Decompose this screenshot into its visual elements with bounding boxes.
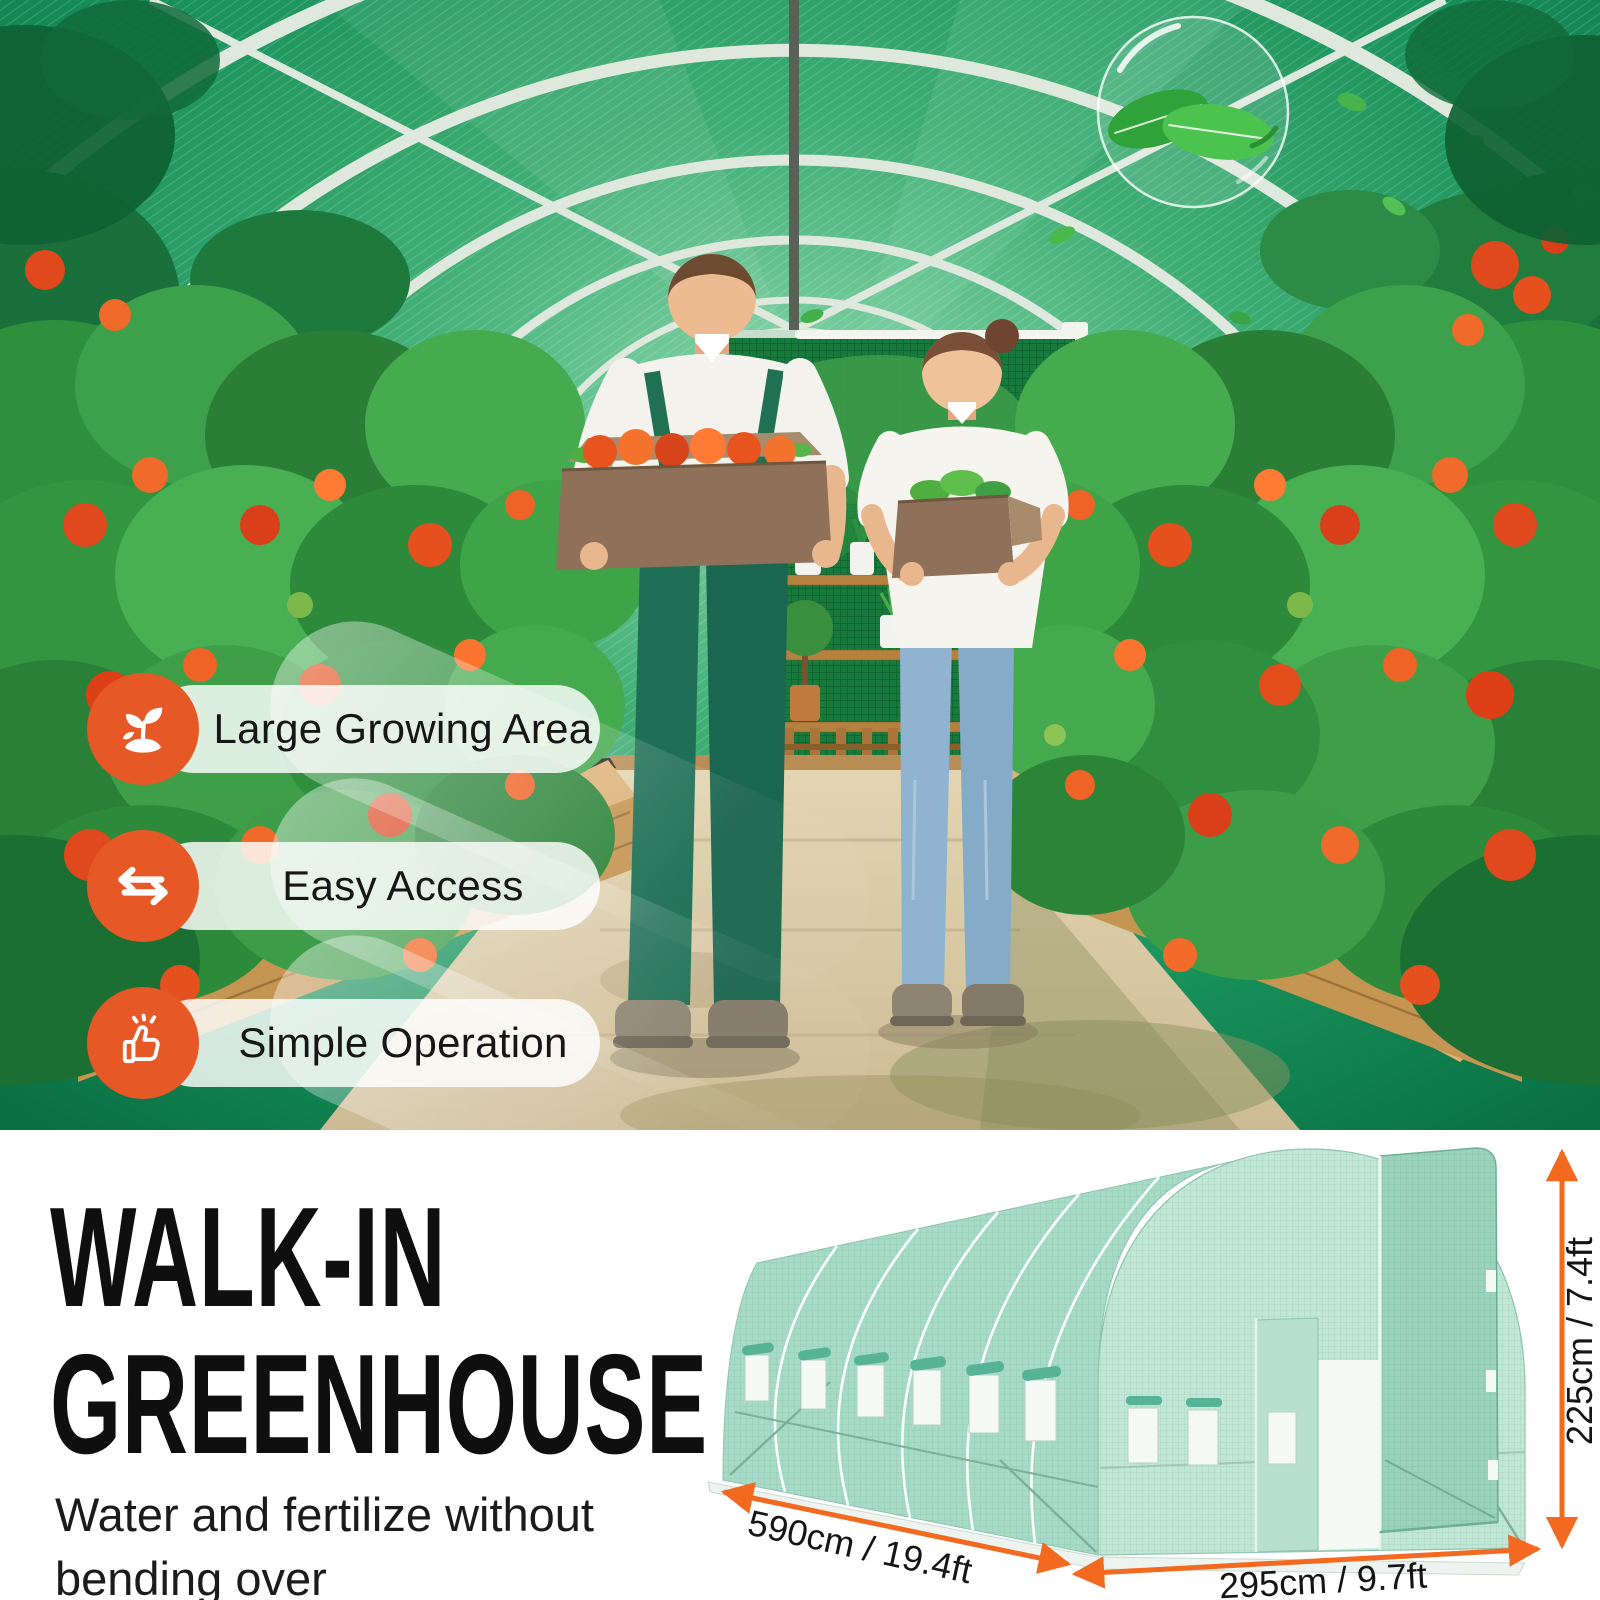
title-line-1: WALK-IN — [50, 1184, 446, 1331]
open-door-panel — [1380, 1148, 1498, 1532]
feature-badge-pill: Easy Access — [150, 842, 600, 930]
feature-badge-label: Easy Access — [282, 862, 523, 910]
sprout-icon — [113, 699, 173, 759]
ridge-pole — [789, 0, 799, 335]
dimension-label-height: 225cm / 7.4ft — [1559, 1201, 1600, 1481]
feature-badge-pill: Large Growing Area — [150, 685, 600, 773]
feature-badge-pill: Simple Operation — [150, 999, 600, 1087]
title-line-2: GREENHOUSE — [50, 1331, 708, 1478]
window-prop-rod — [795, 330, 1085, 339]
badge-icon-circle — [87, 830, 199, 942]
page-subtitle: Water and fertilize without bending over — [55, 1483, 715, 1600]
dimension-diagram: 590cm / 19.4ft 295cm / 9.7ft 225cm / 7.4… — [680, 1130, 1600, 1600]
badge-icon-circle — [87, 673, 199, 785]
exchange-arrows-icon — [113, 856, 173, 916]
feature-badge-label: Simple Operation — [238, 1019, 567, 1067]
feature-badge-easy-access: Easy Access — [0, 828, 900, 944]
greenhouse-product-infographic: Large Growing Area Easy Access — [0, 0, 1600, 1600]
feature-badge-label: Large Growing Area — [214, 705, 593, 753]
greenhouse-photo: Large Growing Area Easy Access — [0, 0, 1600, 1130]
thumbs-up-icon — [113, 1013, 173, 1073]
leaf-bubble-graphic — [1098, 17, 1288, 207]
feature-badge-simple-operation: Simple Operation — [0, 985, 900, 1101]
open-doorway — [1318, 1360, 1380, 1550]
feature-badge-large-growing-area: Large Growing Area — [0, 671, 900, 787]
badge-icon-circle — [87, 987, 199, 1099]
